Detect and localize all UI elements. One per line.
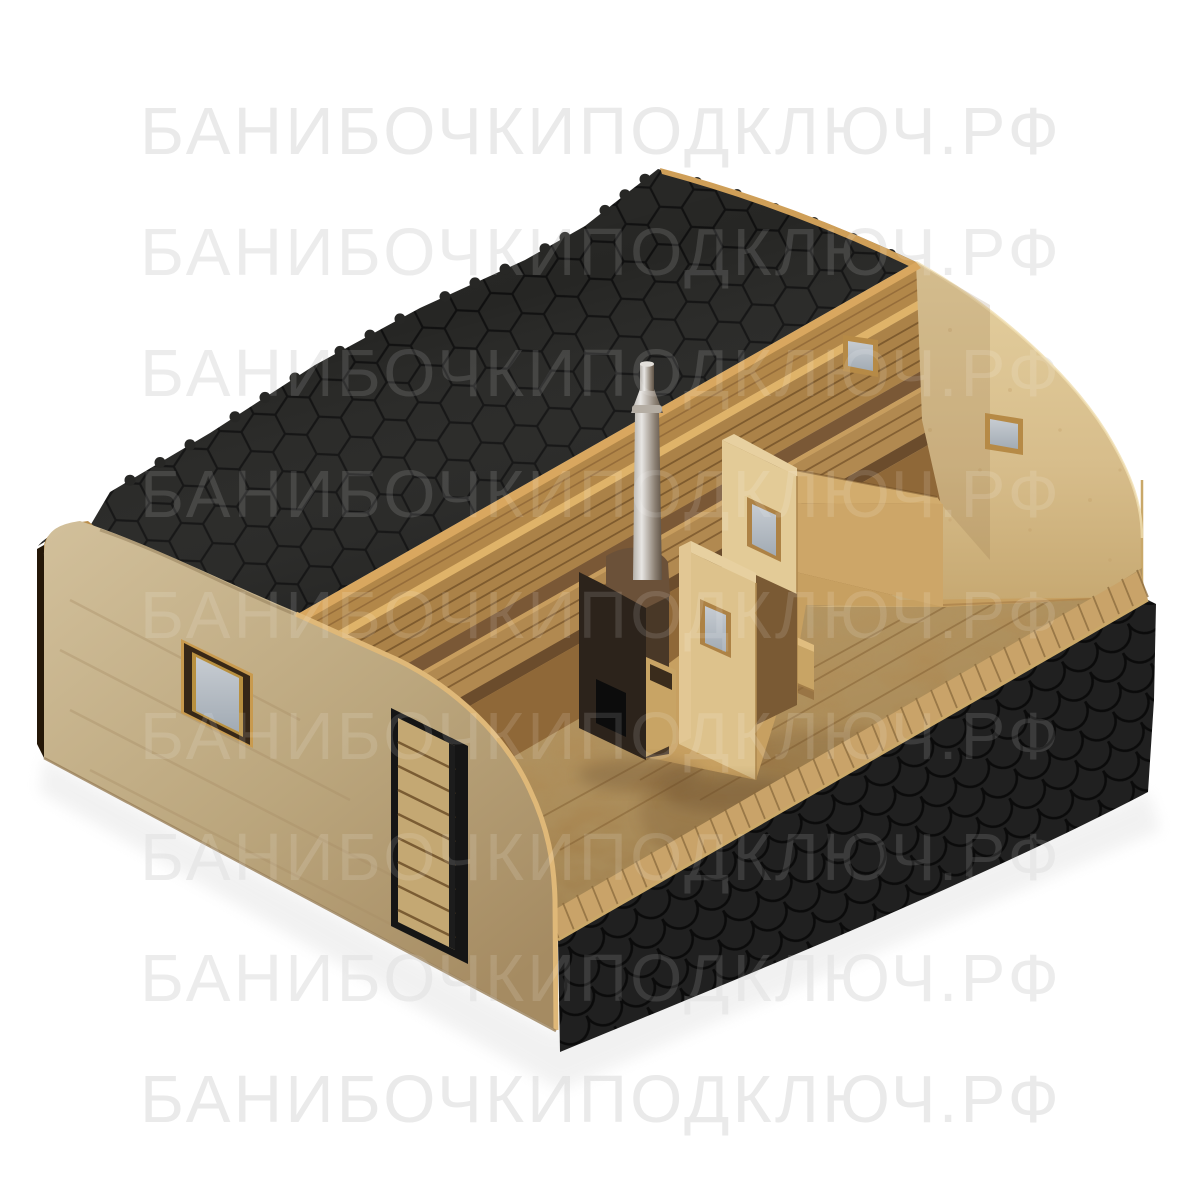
svg-text:БАНИБОЧКИПОДКЛЮЧ.РФ: БАНИБОЧКИПОДКЛЮЧ.РФ [140, 820, 1062, 895]
svg-text:БАНИБОЧКИПОДКЛЮЧ.РФ: БАНИБОЧКИПОДКЛЮЧ.РФ [140, 336, 1062, 411]
svg-text:БАНИБОЧКИПОДКЛЮЧ.РФ: БАНИБОЧКИПОДКЛЮЧ.РФ [140, 457, 1062, 532]
svg-text:БАНИБОЧКИПОДКЛЮЧ.РФ: БАНИБОЧКИПОДКЛЮЧ.РФ [140, 1062, 1062, 1137]
svg-text:БАНИБОЧКИПОДКЛЮЧ.РФ: БАНИБОЧКИПОДКЛЮЧ.РФ [140, 578, 1062, 653]
svg-text:БАНИБОЧКИПОДКЛЮЧ.РФ: БАНИБОЧКИПОДКЛЮЧ.РФ [140, 699, 1062, 774]
svg-text:БАНИБОЧКИПОДКЛЮЧ.РФ: БАНИБОЧКИПОДКЛЮЧ.РФ [140, 215, 1062, 290]
svg-text:БАНИБОЧКИПОДКЛЮЧ.РФ: БАНИБОЧКИПОДКЛЮЧ.РФ [140, 94, 1062, 169]
svg-text:БАНИБОЧКИПОДКЛЮЧ.РФ: БАНИБОЧКИПОДКЛЮЧ.РФ [140, 941, 1062, 1016]
